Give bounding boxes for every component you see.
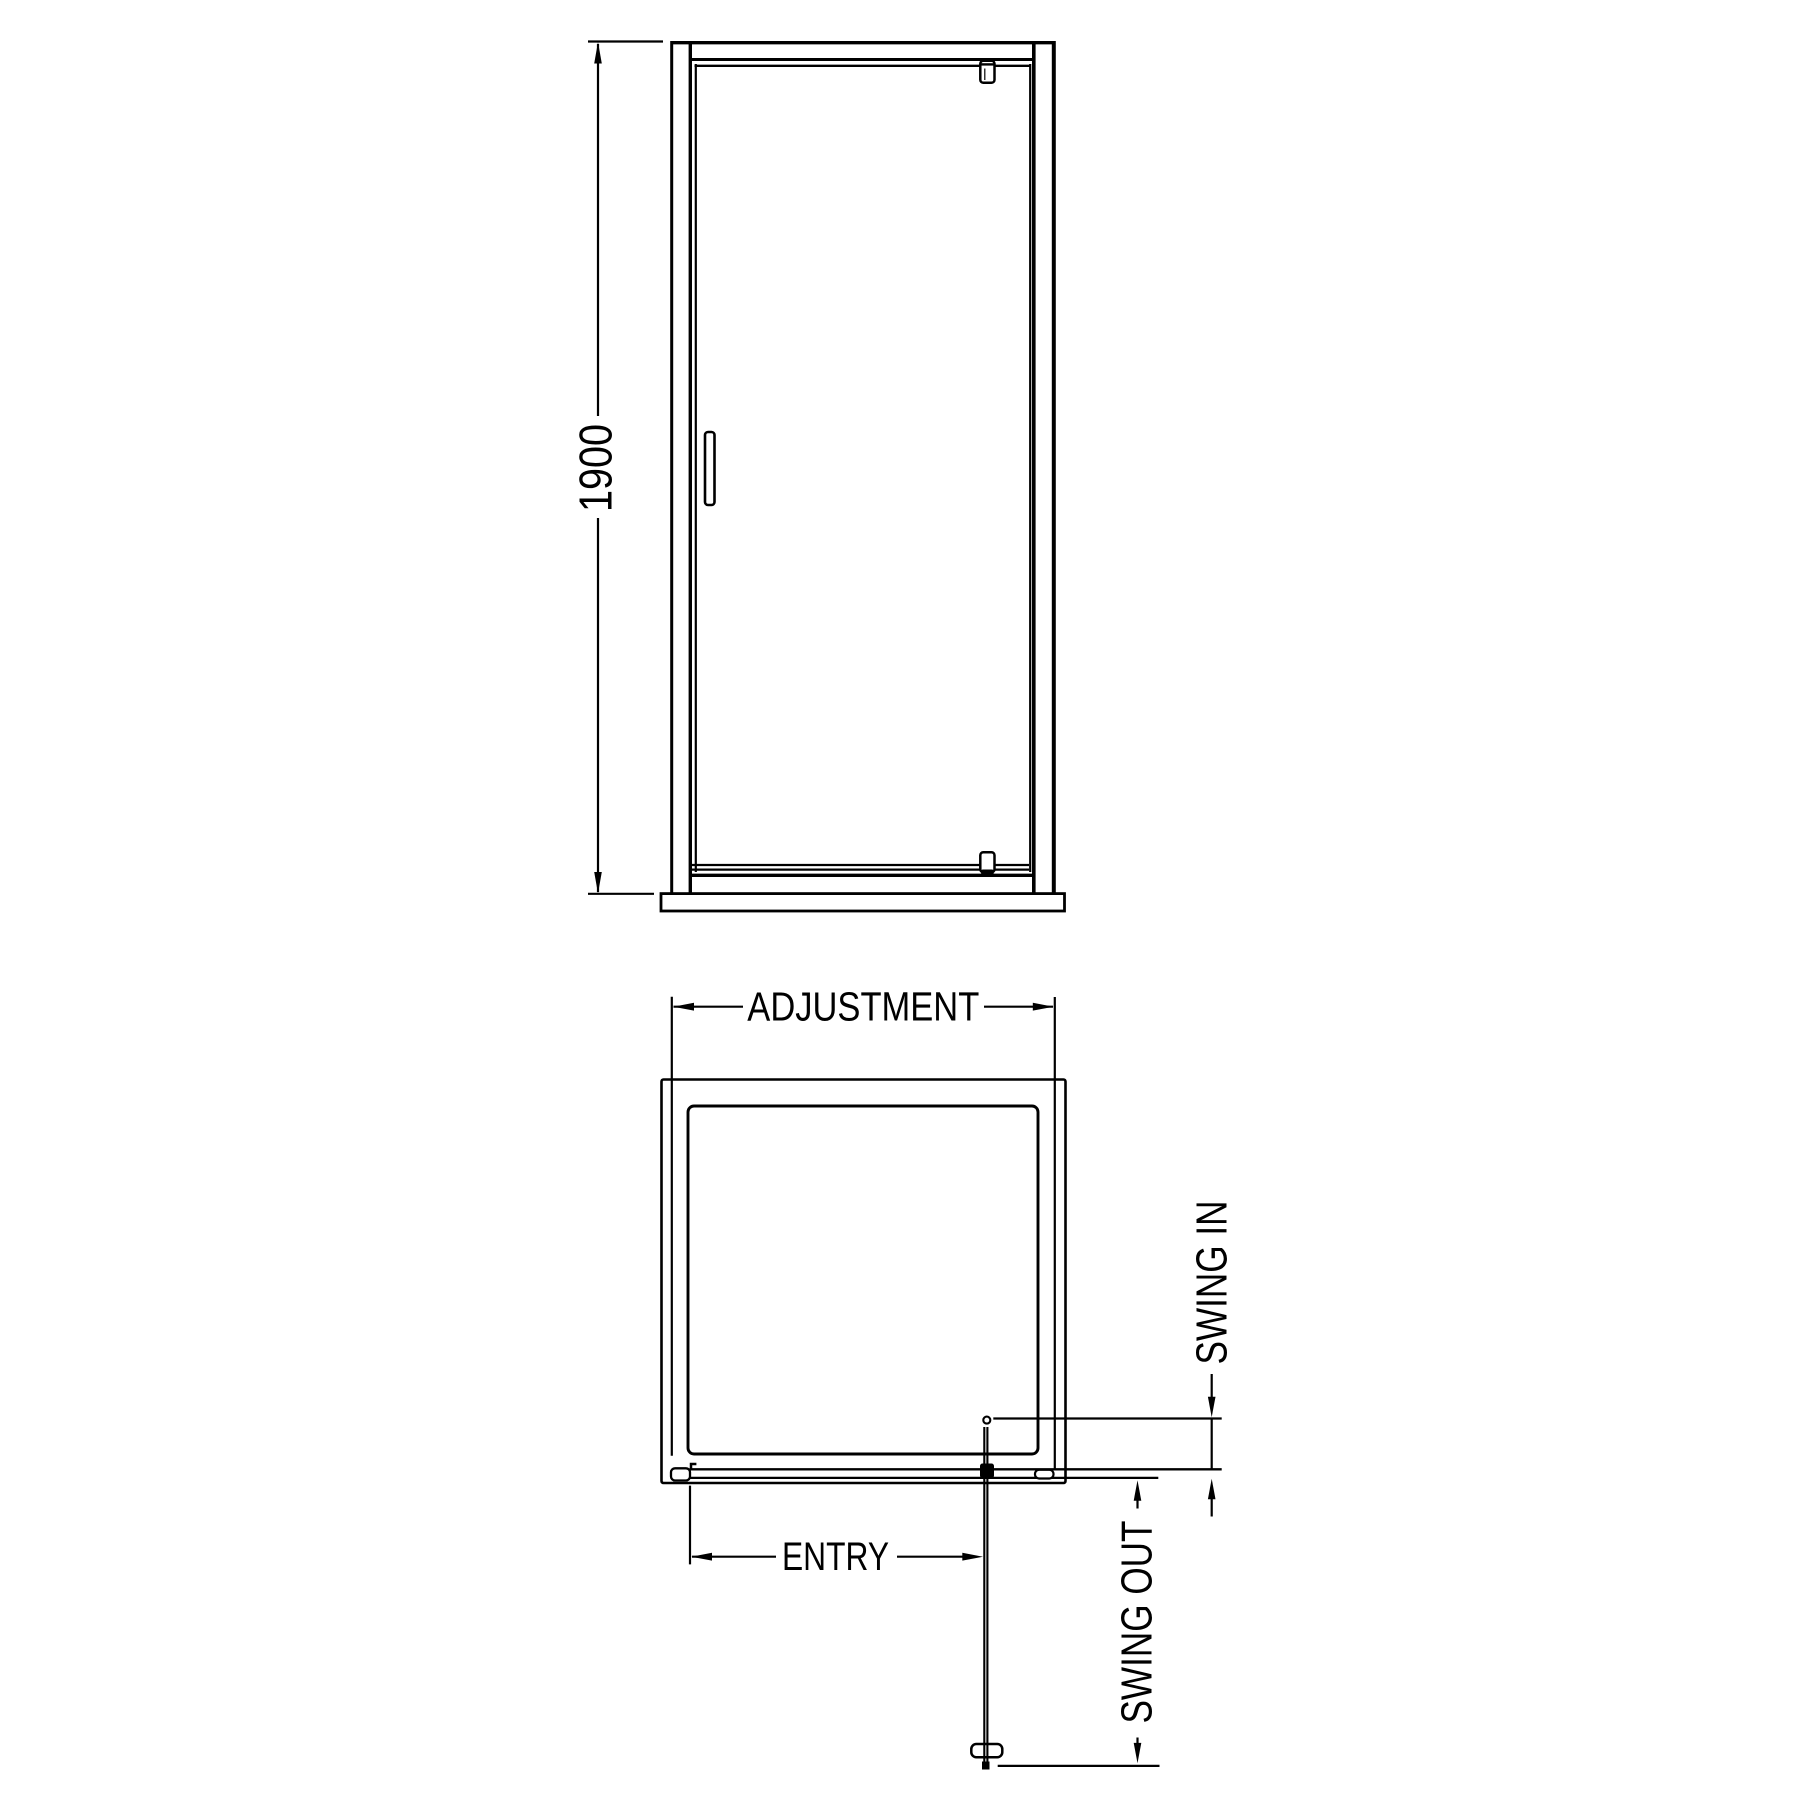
svg-text:ADJUSTMENT: ADJUSTMENT — [747, 983, 979, 1029]
svg-text:ENTRY: ENTRY — [782, 1535, 889, 1579]
svg-text:SWING IN: SWING IN — [1187, 1201, 1236, 1365]
svg-text:1900: 1900 — [570, 424, 622, 512]
svg-text:SWING OUT: SWING OUT — [1113, 1521, 1162, 1724]
